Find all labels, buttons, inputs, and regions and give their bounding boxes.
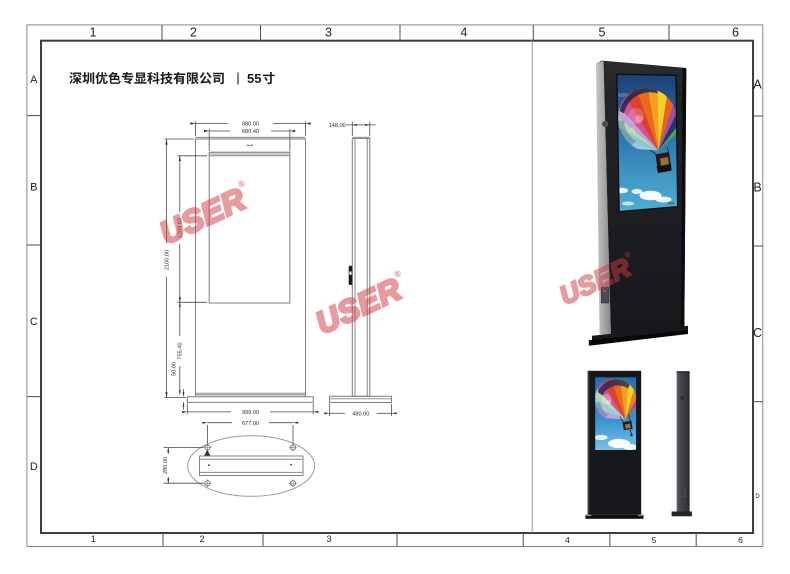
svg-text:3: 3 <box>326 534 331 544</box>
svg-text:D: D <box>30 461 38 473</box>
svg-text:C: C <box>30 316 38 328</box>
svg-text:6: 6 <box>732 26 739 40</box>
svg-text:3: 3 <box>325 26 332 40</box>
svg-text:A: A <box>753 78 762 92</box>
svg-text:480.00: 480.00 <box>352 411 369 417</box>
svg-text:2: 2 <box>199 534 204 544</box>
svg-text:2100.00: 2100.00 <box>164 250 170 270</box>
svg-text:148.00: 148.00 <box>329 123 346 129</box>
svg-text:55: 55 <box>247 71 261 86</box>
svg-text:B: B <box>30 182 37 194</box>
svg-text:1: 1 <box>90 26 97 40</box>
svg-text:A: A <box>30 74 38 86</box>
svg-text:5: 5 <box>652 535 657 545</box>
svg-text:B: B <box>753 181 761 195</box>
svg-text:2: 2 <box>190 26 197 40</box>
svg-text:680.40: 680.40 <box>242 129 259 135</box>
svg-text:280.00: 280.00 <box>163 457 169 474</box>
svg-text:677.00: 677.00 <box>242 421 259 427</box>
svg-text:1: 1 <box>91 534 96 544</box>
svg-text:6: 6 <box>738 535 743 545</box>
svg-text:999.00: 999.00 <box>242 410 259 416</box>
svg-text:D: D <box>755 494 760 500</box>
svg-text:4: 4 <box>461 26 468 40</box>
svg-text:755.40: 755.40 <box>177 342 183 359</box>
svg-text:5: 5 <box>599 26 606 40</box>
svg-text:50.00: 50.00 <box>172 362 178 376</box>
svg-text:880.00: 880.00 <box>242 122 259 128</box>
svg-text:C: C <box>753 326 762 340</box>
svg-text:4: 4 <box>565 535 570 545</box>
